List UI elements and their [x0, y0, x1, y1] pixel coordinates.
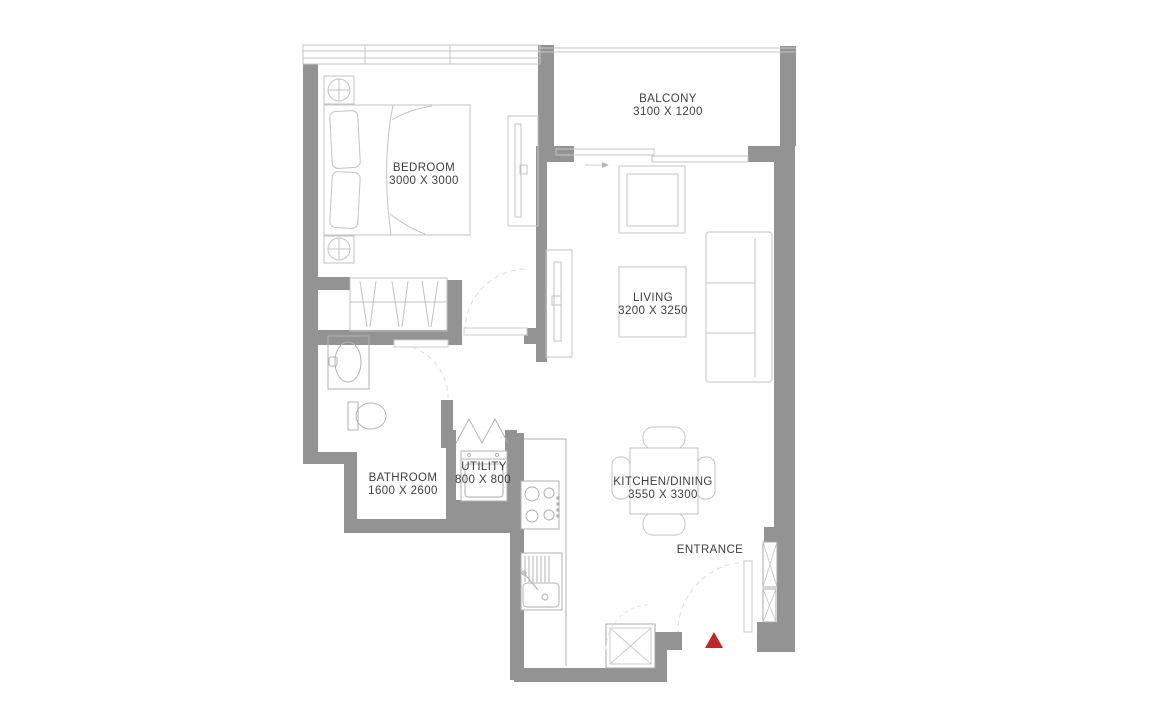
bifold-door-icon [456, 419, 508, 443]
floor-plan-canvas: BEDROOM 3000 X 3000 BALCONY 3100 X 1200 … [0, 0, 1152, 728]
bathroom-fixtures [328, 336, 386, 430]
wall-segment [780, 46, 796, 146]
nightstand-icon [324, 236, 354, 263]
living-label: LIVING [633, 292, 673, 304]
dining-chair-icon [643, 513, 685, 535]
stove-icon [521, 481, 559, 529]
nightstand-icon [324, 76, 354, 104]
armchair-icon [619, 166, 685, 233]
kitchen-dining-dimensions: 3550 X 3300 [628, 489, 698, 501]
living-dimensions: 3200 X 3250 [618, 305, 688, 317]
wall-segment [446, 430, 456, 502]
wall-segment [318, 277, 350, 290]
utility-fixtures [456, 419, 508, 501]
kitchen-sink-icon [521, 553, 562, 610]
wall-segment [446, 500, 514, 522]
wall-segment [654, 648, 667, 682]
bathroom-door-icon [394, 340, 448, 398]
dining-chair-icon [643, 427, 685, 449]
wall-segment [777, 543, 795, 622]
shaft-icon [763, 542, 777, 587]
bedroom-furniture [324, 76, 538, 331]
utility-dimensions: 800 X 800 [455, 474, 511, 486]
wall-segment [344, 462, 357, 524]
sofa-icon [706, 232, 772, 382]
bedroom-window-icon [303, 45, 540, 64]
wall-segment [757, 622, 795, 652]
wall-segment [764, 527, 795, 543]
bedroom-dimensions: 3000 X 3000 [389, 175, 459, 187]
entrance-door-icon [678, 561, 752, 632]
wall-segment [514, 668, 666, 682]
closet-hangers-icon [350, 278, 447, 331]
bedroom-wardrobe-icon [508, 116, 538, 226]
balcony-sliding-door-icon [556, 149, 748, 168]
wall-segment [774, 160, 795, 528]
wall-segment [447, 280, 462, 345]
bedroom-label: BEDROOM [393, 162, 455, 174]
wall-segment [748, 146, 795, 162]
entrance-label: ENTRANCE [677, 544, 743, 556]
utility-label: UTILITY [461, 461, 507, 473]
slide-arrow-icon [602, 162, 609, 168]
bathroom-dimensions: 1600 X 2600 [368, 485, 438, 497]
wall-segment [303, 64, 318, 454]
kitchen-dining-label: KITCHEN/DINING [613, 476, 713, 488]
living-furniture [546, 166, 772, 382]
wall-segment [654, 632, 682, 650]
bedroom-door-icon [464, 269, 527, 335]
toilet-icon [348, 402, 386, 430]
shaft-icon [763, 589, 776, 622]
floor-plan-drawing: BEDROOM 3000 X 3000 BALCONY 3100 X 1200 … [0, 0, 1152, 728]
kitchen-fixtures [521, 439, 566, 666]
balcony-railing-icon [538, 48, 796, 52]
entrance-marker-icon [705, 632, 723, 648]
shaft-icon [606, 624, 655, 668]
tv-console-icon [546, 250, 572, 357]
bathroom-label: BATHROOM [369, 472, 438, 484]
balcony-dimensions: 3100 X 1200 [633, 106, 703, 118]
balcony-label: BALCONY [639, 93, 697, 105]
